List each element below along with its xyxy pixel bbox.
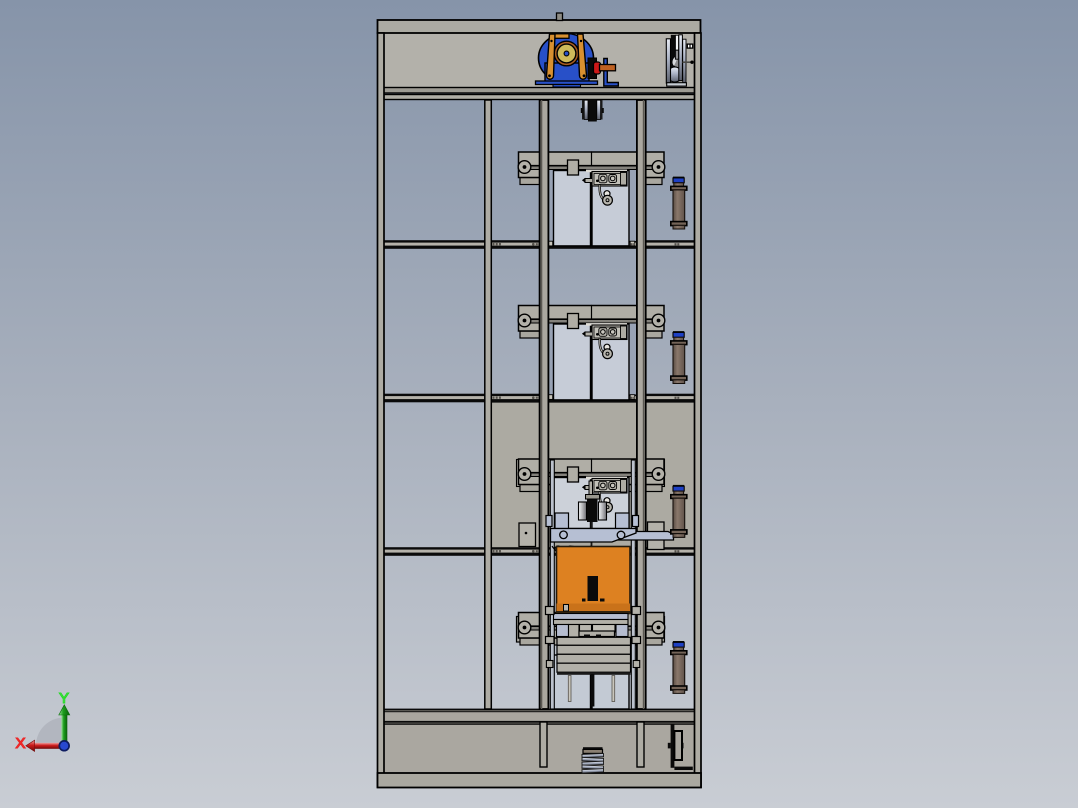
svg-text:X: X: [16, 735, 26, 752]
svg-text:Y: Y: [59, 690, 69, 707]
